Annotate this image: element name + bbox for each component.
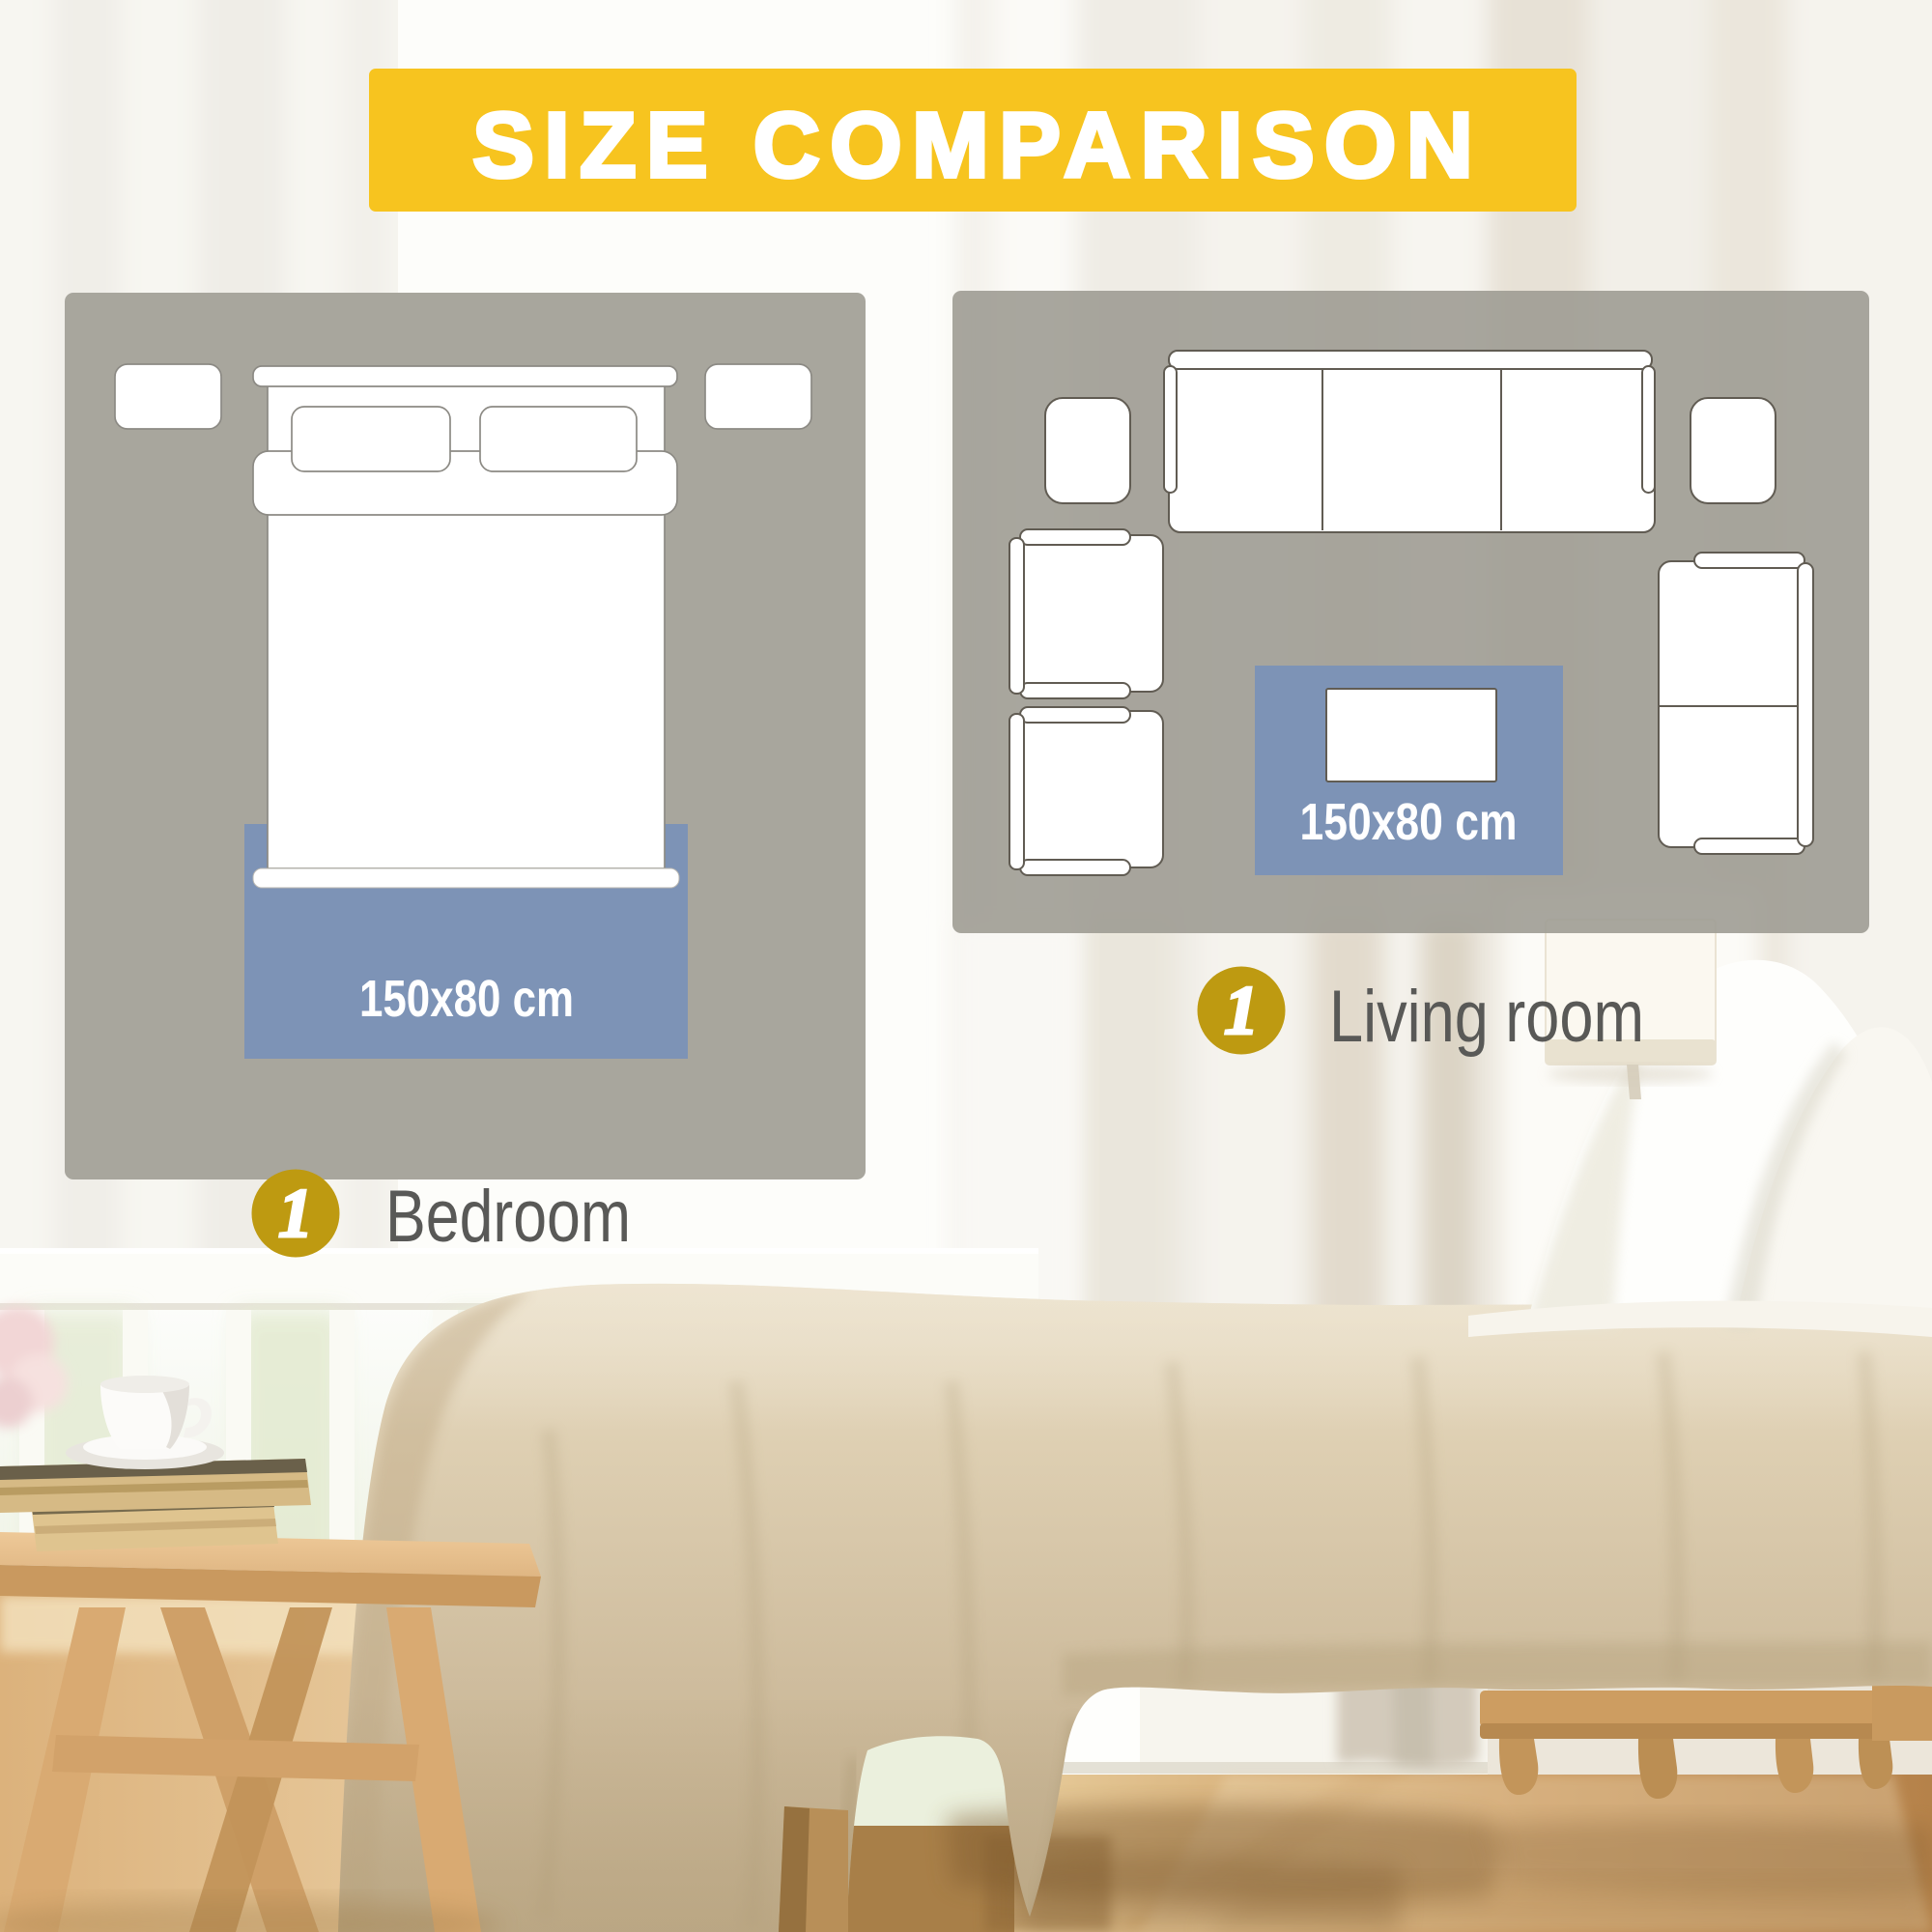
svg-text:1: 1 — [1224, 972, 1259, 1049]
svg-text:150x80 cm: 150x80 cm — [1300, 793, 1518, 851]
svg-text:150x80 cm: 150x80 cm — [359, 970, 574, 1028]
svg-text:Living room: Living room — [1329, 976, 1644, 1058]
svg-text:Bedroom: Bedroom — [385, 1176, 631, 1258]
svg-text:1: 1 — [278, 1175, 313, 1252]
